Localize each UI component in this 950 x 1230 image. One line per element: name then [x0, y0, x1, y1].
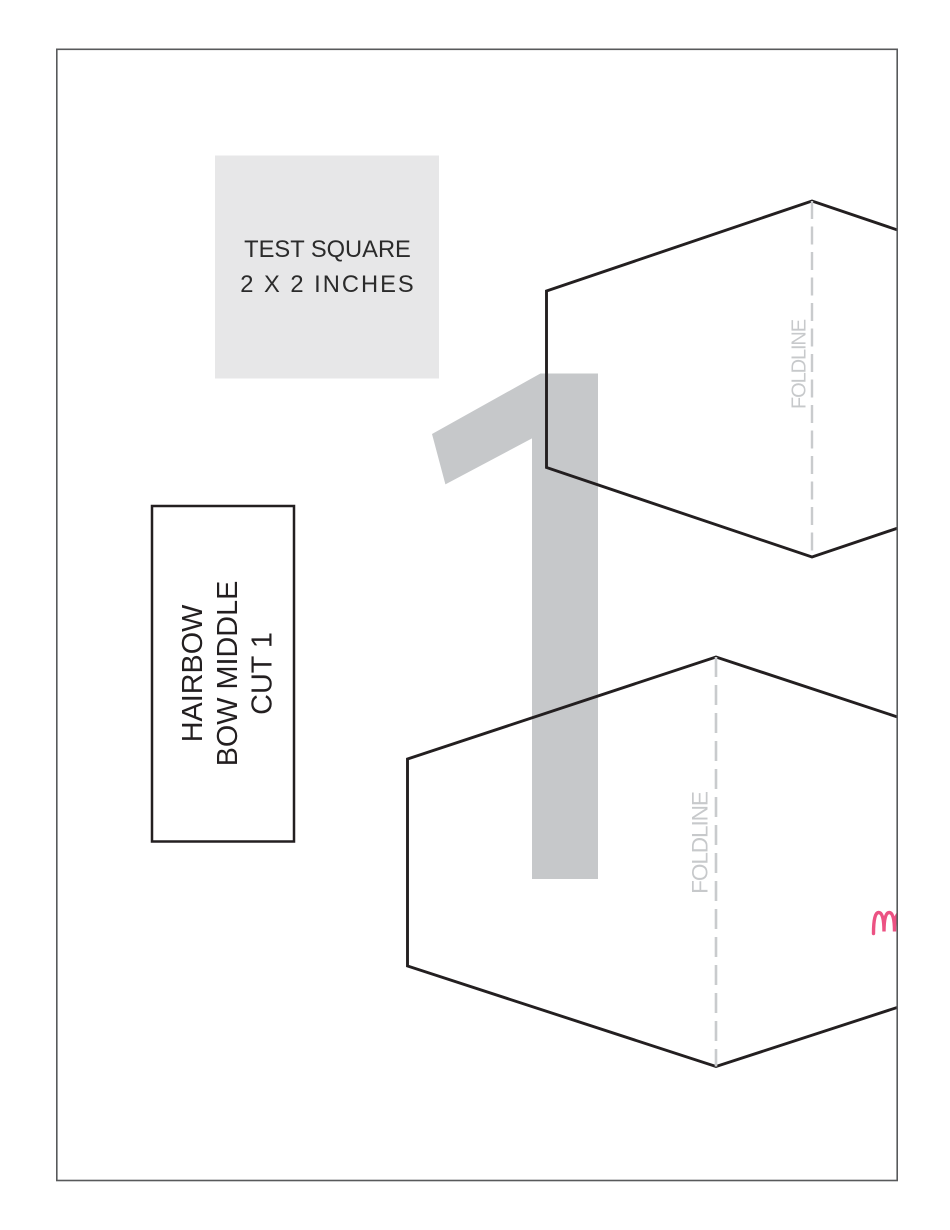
svg-text:HAIRBOW: HAIRBOW: [177, 604, 209, 742]
svg-text:BOW MIDDLE: BOW MIDDLE: [212, 581, 244, 767]
svg-text:CUT 1: CUT 1: [247, 632, 279, 715]
svg-text:FOLDLINE: FOLDLINE: [688, 791, 713, 894]
svg-text:TEST SQUARE: TEST SQUARE: [244, 237, 411, 263]
svg-text:FOLDLINE: FOLDLINE: [789, 319, 811, 409]
svg-text:2 X 2 INCHES: 2 X 2 INCHES: [240, 272, 415, 298]
